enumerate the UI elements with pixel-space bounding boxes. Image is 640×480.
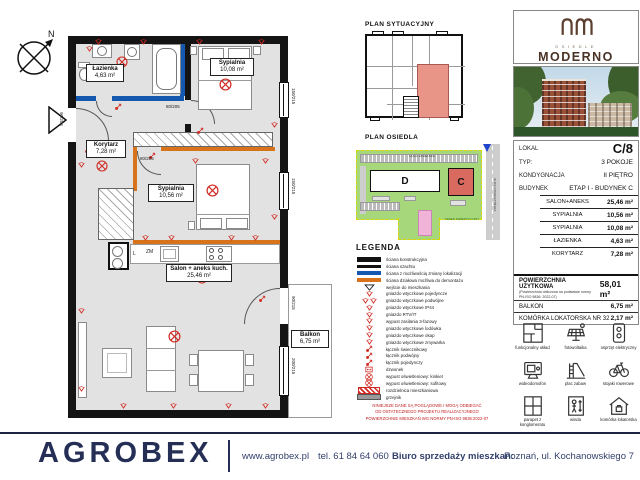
legend-item: gniazdo wtyczkowe lodówka: [356, 325, 508, 332]
room-area: 7,28 m²: [88, 149, 124, 156]
feature-label: osprzęt elektryczny: [601, 346, 637, 351]
room-area: 25,46 m²: [168, 273, 230, 280]
room-area: 6,75 m²: [293, 339, 327, 346]
dining-table: [198, 350, 244, 392]
shaft-pipe: [112, 246, 123, 257]
legend-item: gniazdo wtyczkowe okap: [356, 332, 508, 339]
legend-item: wypust oświetleniowy: sufitowy: [356, 380, 508, 387]
shaft-wall-icon: [357, 265, 381, 269]
legend-label: dzwonek: [386, 367, 403, 372]
room-label-lazienka: Łazienka 4,63 m²: [86, 64, 124, 82]
bed-line: [196, 214, 250, 215]
photo-building-side: [588, 103, 632, 127]
playground-icon: [565, 358, 587, 380]
elevator-icon: [565, 395, 587, 417]
washbasin-bowl: [97, 46, 107, 56]
socket-icon: [95, 39, 102, 45]
nightstand: [188, 221, 195, 230]
legend-label: ściana z możliwością zmiany lokalizacji: [386, 271, 462, 276]
room-area: 10,56 m²: [150, 193, 192, 200]
fridge-label: L: [133, 251, 136, 257]
bathtub-inner: [156, 48, 177, 90]
info-label: LOKAL: [519, 146, 538, 152]
switch-icon: [114, 103, 122, 111]
storage-label: KOMÓRKA LOKATORSKA NR 32: [519, 316, 609, 322]
area-value: 4,63 m²: [595, 238, 633, 245]
balcony-label: BALKON: [519, 304, 543, 310]
wall-removable: [161, 147, 275, 151]
socket-icon: [258, 39, 265, 45]
pillow: [200, 218, 222, 229]
shaft-pipe: [112, 258, 123, 269]
area-row: ŁAZIENKA4,63 m²: [540, 234, 638, 247]
chair: [189, 374, 198, 386]
feature-label: wideodomofon: [519, 382, 546, 387]
map-arrow-icon: [483, 144, 491, 152]
wall: [68, 36, 76, 108]
feature-label: parapet z konglomeratu: [511, 418, 554, 428]
room-name: Balkon: [293, 332, 327, 339]
legend-label: ściana szachtu: [386, 264, 415, 269]
legend-label: ściana konstrukcyjna: [386, 257, 427, 262]
ceiling-light-icon: [96, 160, 108, 172]
balcony-bump: [372, 31, 384, 35]
info-row: BUDYNEK ETAP I - BUDYNEK C: [514, 182, 638, 195]
legend-item: wejście do mieszkania: [356, 284, 508, 291]
room-label-sypialnia-1: Sypialnia 10,08 m²: [210, 58, 254, 76]
area-label: ŁAZIENKA: [540, 238, 595, 244]
moderno-monogram-icon: [559, 15, 593, 37]
area-label: SYPIALNIA: [540, 212, 595, 218]
socket-icon: [366, 305, 373, 311]
area-value: 7,28 m²: [595, 251, 633, 258]
legend-item: rozdzielnica mieszkaniowa: [356, 387, 508, 394]
building-photo: [513, 66, 639, 137]
removable-wall-icon: [357, 278, 381, 282]
feature: fotowoltaika: [554, 322, 597, 350]
info-label: KONDYGNACJA: [519, 173, 565, 179]
legend-label: gniazdo wtyczkowe IP44: [386, 305, 434, 310]
chair: [245, 354, 254, 366]
chair: [245, 374, 254, 386]
ceiling-light-icon: [206, 184, 219, 197]
switch-icon: [258, 295, 266, 303]
hob-burner: [209, 255, 214, 260]
feature-label: plac zabaw: [565, 382, 586, 387]
brand-name: MODERNO: [514, 50, 638, 64]
balcony-row: BALKON 6,75 m²: [514, 301, 638, 312]
dimension-label: 200/215: [291, 358, 296, 374]
legend-label: łącznik świecznikowy: [386, 347, 427, 352]
legend-label: rozdzielnica mieszkaniowa: [386, 388, 438, 393]
footer-address: Poznań, ul. Kochanowskiego 7: [504, 451, 634, 462]
socket-icon: [196, 39, 203, 45]
socket-icon: [366, 291, 373, 297]
legend-item: ściana konstrukcyjna: [356, 256, 508, 263]
area-row: SYPIALNIA10,56 m²: [540, 208, 638, 221]
socket-icon: [86, 46, 93, 52]
socket-icon: [225, 403, 232, 409]
footer-website: www.agrobex.pl: [242, 451, 309, 462]
compass-north-label: N: [48, 29, 55, 39]
radiator-icon: [357, 394, 381, 400]
parking-strip: [360, 202, 400, 211]
feature-label: stojaki rowerowe: [603, 382, 634, 387]
compass-icon: N: [12, 28, 58, 80]
dimension-label: 150/215: [291, 178, 296, 194]
socket-icon: [170, 403, 177, 409]
dimension-label: 150/215: [291, 88, 296, 104]
feature-label: winda: [570, 418, 581, 423]
wall: [68, 142, 76, 418]
window-sill-icon: [522, 395, 544, 417]
usable-area-note: (Powierzchnia obliczona na podstawie nor…: [519, 290, 597, 299]
legend-item: ściana szachtu: [356, 263, 508, 270]
rtv-socket-icon: [366, 312, 373, 318]
wall: [68, 410, 288, 418]
balcony-value: 6,75 m²: [611, 303, 633, 310]
info-row: TYP: 3 POKOJE: [514, 156, 638, 169]
info-label: BUDYNEK: [519, 186, 548, 192]
window: [279, 82, 289, 118]
building-d: D: [370, 170, 440, 192]
socket-icon: [366, 332, 373, 338]
street-top-label: ULICA JASIELSKA: [382, 154, 462, 158]
area-row: SALON+ANEKS25,46 m²: [540, 195, 638, 208]
highlighted-unit: [417, 64, 449, 118]
ceiling-light-icon: [168, 330, 181, 343]
wall: [280, 118, 288, 172]
features-grid: funkcjonalny układ fotowoltaika osprzęt …: [511, 322, 640, 428]
room-label-korytarz: Korytarz 7,28 m²: [86, 140, 126, 158]
dimension-label: 90/204: [59, 112, 64, 126]
socket-icon: [271, 122, 278, 128]
socket-icon: [78, 308, 85, 314]
balcony-bump: [450, 117, 459, 121]
room-name: Sypialnia: [150, 186, 192, 193]
storage-unit-icon: [608, 395, 630, 417]
feature: parapet z konglomeratu: [511, 395, 554, 428]
feature: winda: [554, 395, 597, 428]
plan-osiedla-title: PLAN OSIEDLA: [365, 134, 418, 141]
area-row: KORYTARZ7,28 m²: [540, 247, 638, 260]
washing-machine-drum: [127, 47, 137, 57]
area-value: 10,56 m²: [595, 212, 633, 219]
video-intercom-icon: [522, 358, 544, 380]
disclaimer-line: POWIERZCHNIE MIESZKAŃ WG NORMY PN-ISO 98…: [348, 416, 506, 422]
usable-area-value: 58,01 m²: [600, 279, 633, 299]
feature: osprzęt elektryczny: [597, 322, 640, 350]
window: [279, 172, 289, 210]
area-label: SALON+ANEKS: [540, 199, 595, 205]
entry-icon: [364, 284, 375, 291]
wardrobe: [98, 188, 134, 240]
legend-label: gniazdo RTV/IT: [386, 312, 416, 317]
legend-item: ściana działowa możliwa do demontażu: [356, 277, 508, 284]
sofa-line: [146, 348, 176, 349]
socket-icon: [366, 325, 373, 331]
info-row: KONDYGNACJA II PIĘTRO: [514, 169, 638, 182]
legend-label: łącznik pojedynczy: [386, 360, 423, 365]
hob-burner: [218, 255, 223, 260]
bike-rack-icon: [608, 358, 630, 380]
window: [279, 346, 289, 396]
feature-label: komórka lokatorska: [600, 418, 636, 423]
legend-item: łącznik pojedynczy: [356, 359, 508, 366]
hob-burner: [209, 248, 214, 253]
entry-triangle-icon: [48, 106, 68, 134]
wall: [280, 324, 288, 346]
structural-wall-icon: [357, 257, 381, 262]
chair: [189, 354, 198, 366]
legend-title: LEGENDA: [356, 243, 508, 252]
feature-label: fotowoltaika: [564, 346, 586, 351]
socket-icon: [78, 386, 85, 392]
unit-details-box: LOKAL C/8 TYP: 3 POKOJE KONDYGNACJA II P…: [513, 140, 639, 325]
plan-sytuacyjny-title: PLAN SYTUACYJNY: [365, 21, 434, 28]
room-label-sypialnia-2: Sypialnia 10,56 m²: [148, 184, 194, 202]
area-label: SYPIALNIA: [540, 225, 595, 231]
plan-sytuacyjny-map: [365, 34, 463, 118]
feature: funkcjonalny układ: [511, 322, 554, 350]
feature-label: funkcjonalny układ: [515, 346, 549, 351]
legend-label: gniazdo wtyczkowe podwójne: [386, 298, 444, 303]
plan-osiedla-map: D C ULICA JASIELSKA ULICA STRZESZYŃSKA T…: [352, 144, 504, 240]
area-label: TEREN INWESTYCYJNY: [444, 218, 480, 222]
info-label: TYP:: [519, 160, 532, 166]
wall-movable: [112, 96, 184, 101]
disclaimer: NINIEJSZE DANE SĄ POGLĄDOWE I MOGĄ ODBIE…: [348, 403, 506, 422]
ceiling-light-icon: [219, 78, 232, 91]
area-row: SYPIALNIA10,08 m²: [540, 221, 638, 234]
dishwasher-label: ZM: [146, 249, 153, 255]
area-value: 25,46 m²: [595, 199, 633, 206]
brand-block: OSIEDLE MODERNO: [513, 10, 639, 64]
feature: komórka lokatorska: [597, 395, 640, 428]
future-building: [418, 210, 432, 236]
wall: [280, 210, 288, 288]
info-value: II PIĘTRO: [603, 172, 633, 179]
socket-icon: [262, 403, 269, 409]
sink-basin: [163, 249, 176, 259]
switch-icon: [196, 127, 204, 135]
legend-label: gniazdo wtyczkowe lodówka: [386, 326, 441, 331]
legend-item: grzejnik: [356, 394, 508, 401]
movable-wall-icon: [357, 271, 381, 275]
legend-label: gniazdo wtyczkowe zmywarka: [386, 340, 445, 345]
socket-icon: [370, 298, 377, 304]
legend-item: gniazdo wtyczkowe podwójne: [356, 297, 508, 304]
legend-item: gniazdo RTV/IT: [356, 311, 508, 318]
area-value: 10,08 m²: [595, 225, 633, 232]
socket-icon: [228, 235, 235, 241]
info-value: 3 POKOJE: [601, 159, 633, 166]
socket-icon: [120, 403, 127, 409]
unit-number: C/8: [613, 141, 633, 156]
room-name: Łazienka: [88, 66, 122, 73]
socket-icon: [78, 162, 85, 168]
wall: [280, 396, 288, 418]
staircase: [403, 96, 419, 118]
room-name: Sypialnia: [212, 60, 252, 67]
legend-label: wejście do mieszkania: [386, 285, 430, 290]
sofa-line: [146, 370, 176, 371]
info-value: ETAP I - BUDYNEK C: [569, 185, 633, 192]
room-label-balkon: Balkon 6,75 m²: [291, 330, 329, 348]
footer-divider: [0, 432, 640, 434]
legend-label: wypust oświetleniowy: kinkiet: [386, 374, 443, 379]
balcony-bump: [370, 117, 380, 121]
feature: plac zabaw: [554, 358, 597, 386]
dimension-label: 80/205: [140, 156, 154, 161]
balcony-bump: [392, 31, 404, 35]
wall-movable: [76, 96, 96, 101]
nightstand: [253, 46, 261, 55]
photo-hedge: [514, 127, 638, 137]
socket-icon: [252, 235, 259, 241]
armchair-seat: [107, 353, 127, 373]
room-area: 4,63 m²: [88, 73, 122, 80]
dimension-label: 80/205: [166, 104, 180, 109]
photovoltaics-icon: [565, 322, 587, 344]
distribution-board-icon: [358, 387, 380, 394]
socket-icon: [192, 158, 199, 164]
legend-label: gniazdo wtyczkowe pojedyncze: [386, 291, 447, 296]
socket-icon: [140, 39, 147, 45]
wall: [280, 36, 288, 82]
room-label-salon: Salon + aneks kuch. 25,46 m²: [166, 264, 232, 282]
legend: LEGENDA ściana konstrukcyjna ściana szac…: [356, 243, 508, 401]
area-label: KORYTARZ: [540, 251, 595, 257]
legend-label: łącznik podwójny: [386, 353, 419, 358]
wall-removable: [133, 151, 137, 191]
legend-item: ściana z możliwością zmiany lokalizacji: [356, 270, 508, 277]
legend-item: wypust zasilania 3-fazowy: [356, 318, 508, 325]
footer-vertical-divider: [228, 440, 230, 472]
hob-burner: [218, 248, 223, 253]
nightstand: [190, 46, 197, 55]
room-name: Salon + aneks kuch.: [168, 266, 230, 273]
socket-icon: [142, 235, 149, 241]
usable-area-row: POWIERZCHNIA UŻYTKOWA (Powierzchnia obli…: [514, 276, 638, 301]
electrical-fittings-icon: [608, 322, 630, 344]
socket-icon: [168, 235, 175, 241]
info-row: LOKAL C/8: [514, 141, 638, 156]
legend-label: wypust oświetleniowy: sufitowy: [386, 381, 446, 386]
street-right-label: ULICA STRZESZYŃSKA: [493, 178, 497, 211]
legend-label: wypust zasilania 3-fazowy: [386, 319, 437, 324]
legend-label: gniazdo wtyczkowe okap: [386, 333, 435, 338]
balcony-bump: [436, 31, 448, 35]
totals-block: POWIERZCHNIA UŻYTKOWA (Powierzchnia obli…: [514, 274, 638, 324]
room-name: Korytarz: [88, 142, 124, 149]
legend-item: gniazdo wtyczkowe pojedyncze: [356, 290, 508, 297]
socket-icon: [262, 158, 269, 164]
legend-item: gniazdo wtyczkowe IP44: [356, 304, 508, 311]
legend-label: grzejnik: [386, 395, 401, 400]
socket-icon: [362, 298, 369, 304]
agrobex-logo: AGROBEX: [38, 437, 213, 470]
dimension-label: 90/215: [291, 296, 296, 310]
footer-phone: tel. 61 84 64 060: [318, 451, 389, 462]
feature: stojaki rowerowe: [597, 358, 640, 386]
power-outlet-icon: [366, 318, 373, 324]
socket-icon: [271, 214, 278, 220]
building-c: C: [448, 168, 474, 196]
room-area: 10,08 m²: [212, 67, 252, 74]
photo-building-main: [542, 79, 586, 133]
feature: wideodomofon: [511, 358, 554, 386]
footer-office-label: Biuro sprzedaży mieszkań:: [392, 451, 514, 462]
unit-panel: OSIEDLE MODERNO LOKAL C/8 TYP: 3 POKOJE …: [513, 10, 639, 325]
pillow: [226, 218, 248, 229]
legend-label: ściana działowa możliwa do demontażu: [386, 278, 463, 283]
brand-osiedle: OSIEDLE: [514, 44, 638, 49]
usable-area-label: POWIERZCHNIA UŻYTKOWA: [519, 278, 600, 290]
floor-plan-icon: [522, 322, 544, 344]
